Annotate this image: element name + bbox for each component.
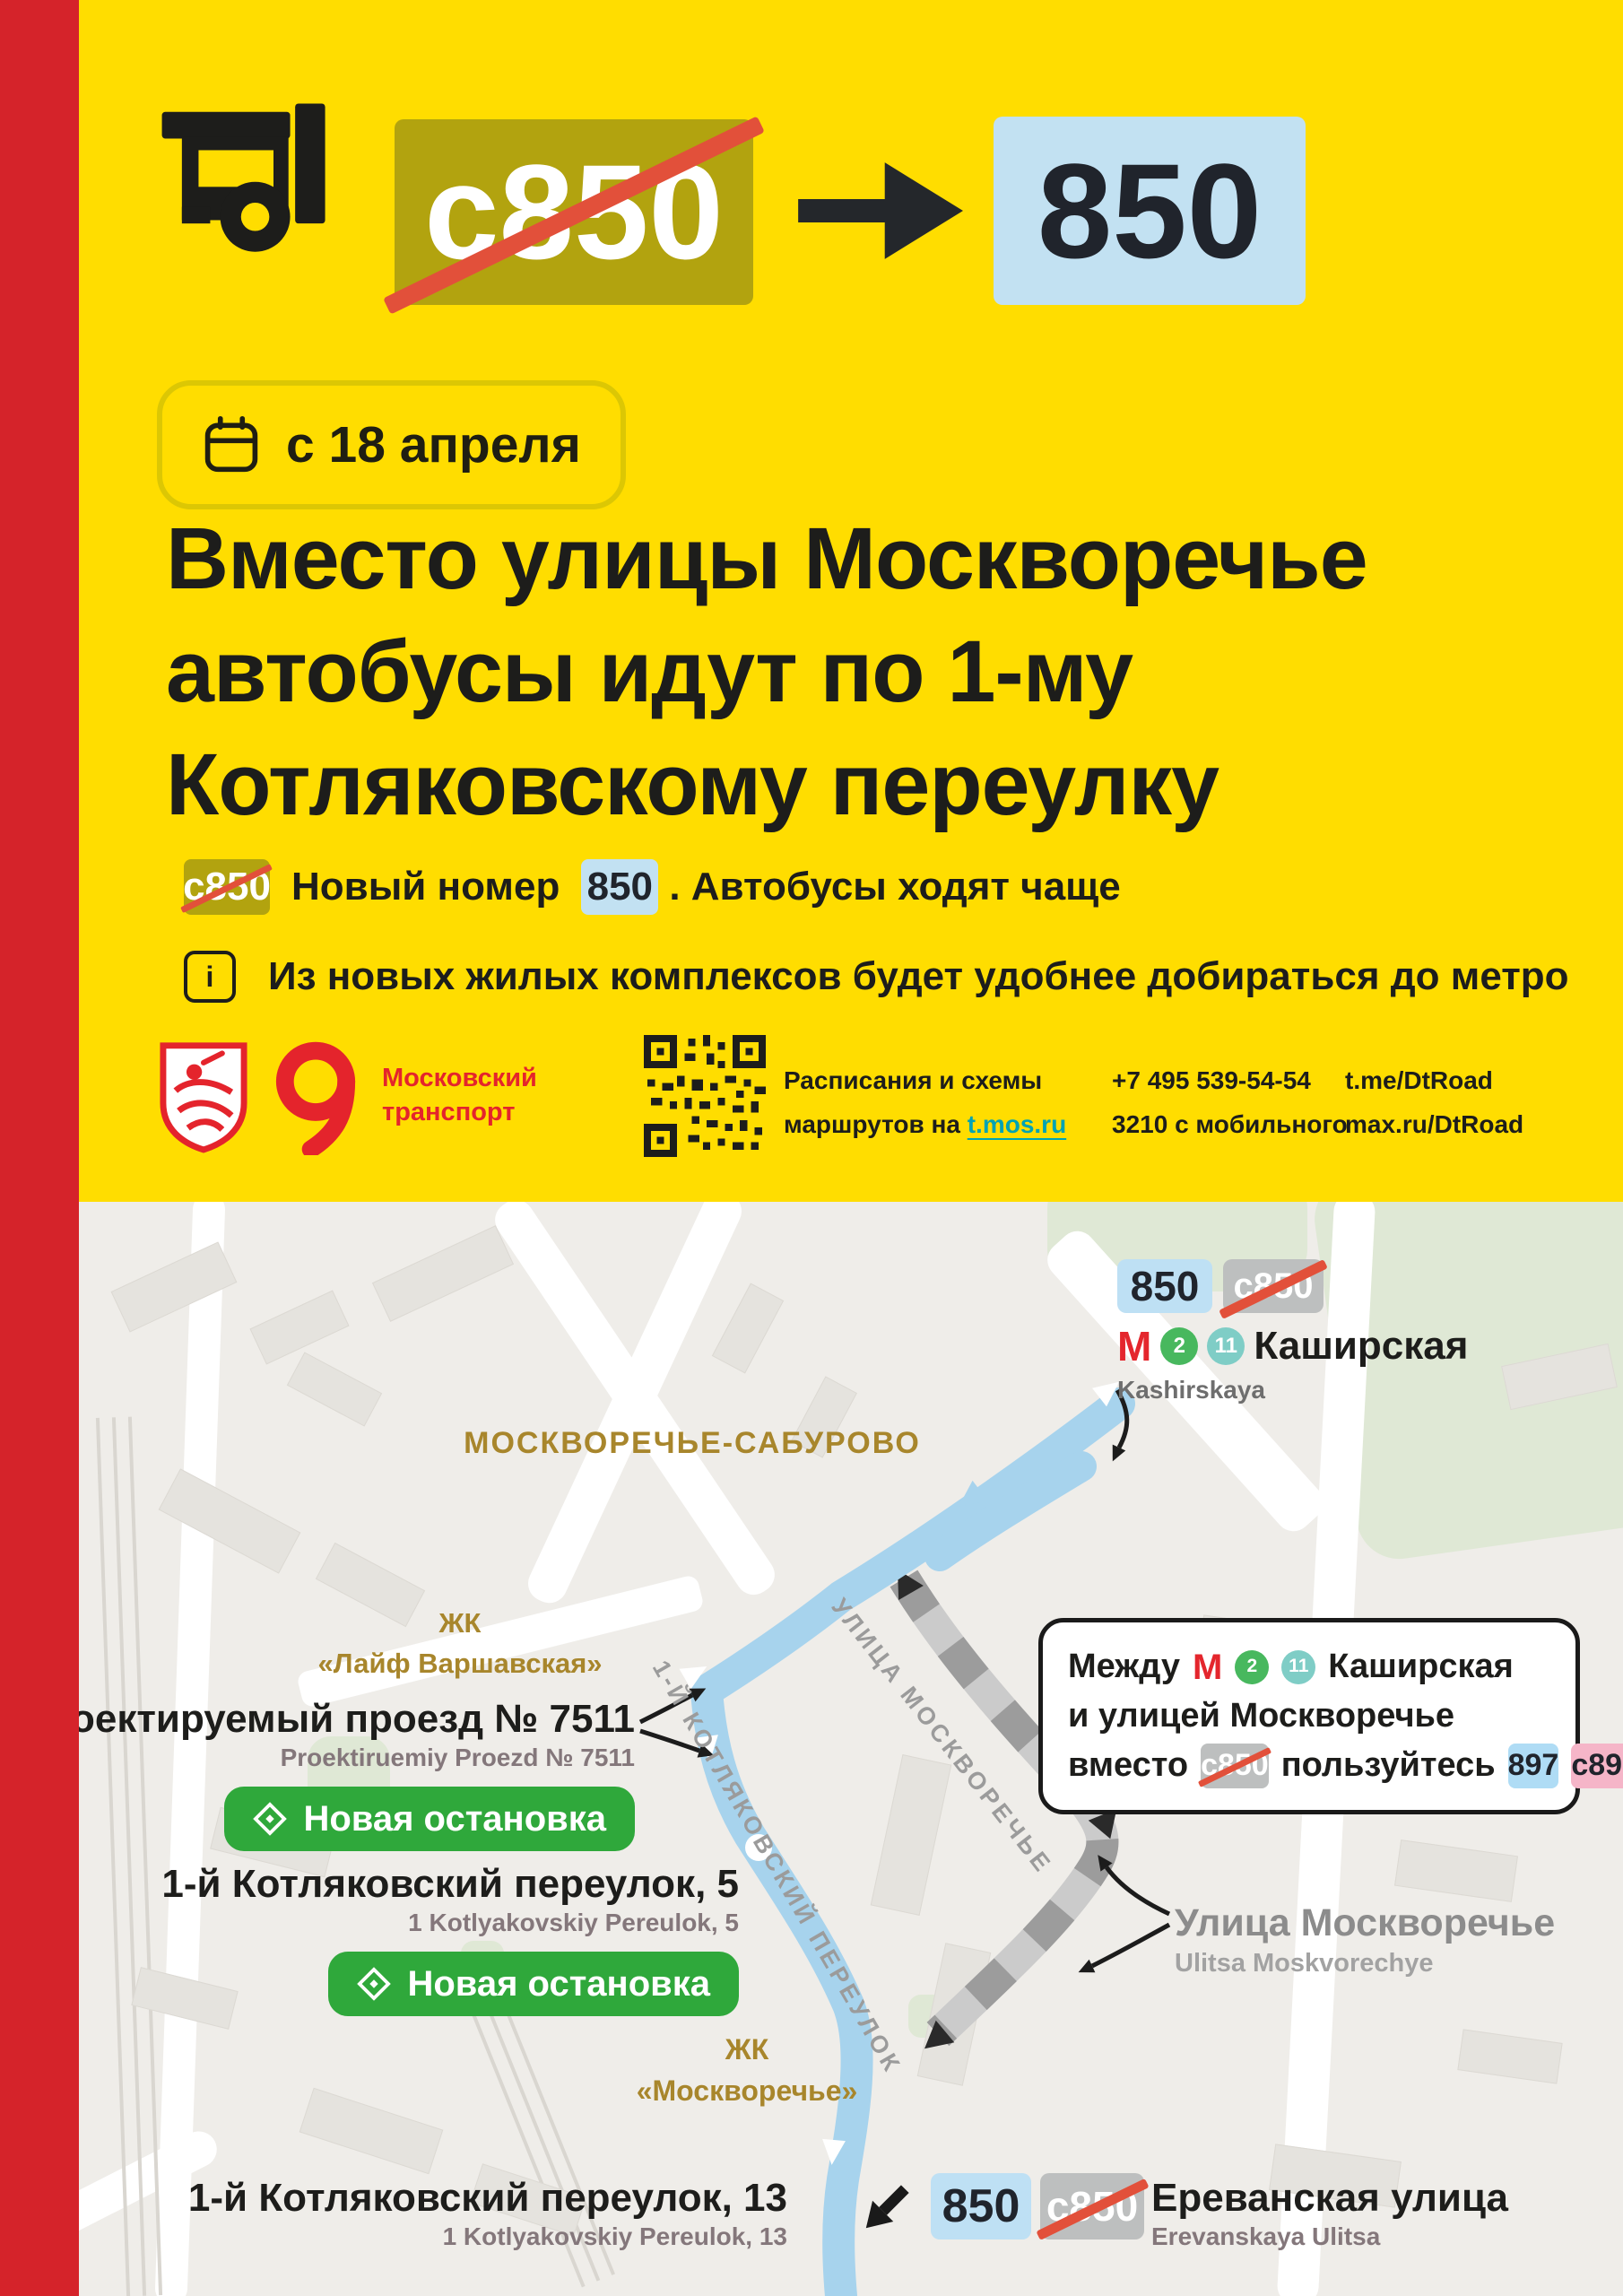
phone-mobile: 3210 с мобильного — [1112, 1102, 1348, 1146]
station-name-latin: Kashirskaya — [1117, 1376, 1468, 1405]
note-metro-access: i Из новых жилых комплексов будет удобне… — [184, 951, 1569, 1003]
diamond-icon — [253, 1802, 287, 1836]
note-text-before: Новый номер — [291, 865, 560, 909]
effective-date-badge: с 18 апреля — [157, 380, 626, 509]
old-route-mini-badge: c850 — [184, 859, 270, 915]
stop-name-latin: Proektiruemiy Proezd № 7511 — [281, 1744, 635, 1772]
metro-icon: М — [1193, 1649, 1222, 1685]
route-897-badge: 897 — [1508, 1744, 1559, 1788]
new-route-mini-badge: 850 — [581, 859, 658, 915]
zhk-moskvorechye-label: ЖК «Москворечье» — [568, 2029, 926, 2112]
diamond-icon — [357, 1967, 391, 2001]
metro-line-11-icon: 11 — [1207, 1327, 1245, 1365]
transport-poster: c850 850 с 18 апреля Вместо улицы Мо — [0, 0, 1623, 2296]
metro-line-11-icon: 11 — [1281, 1650, 1315, 1684]
metro-line-2-icon: 2 — [1235, 1650, 1269, 1684]
stop-proezd-7511: Проектируемый проезд № 7511 Proektiruemi… — [79, 1697, 635, 1851]
stop-name: Проектируемый проезд № 7511 — [79, 1697, 635, 1742]
alternative-routes-infobox: Между М 2 11 Каширская и улицей Москворе… — [1038, 1618, 1580, 1814]
qr-code-icon — [644, 1035, 766, 1157]
stop-name: 1-й Котляковский переулок, 5 — [161, 1862, 739, 1907]
new-stop-badge: Новая остановка — [224, 1787, 635, 1851]
phone-numbers: +7 495 539-54-54 3210 с мобильного — [1112, 1058, 1348, 1146]
title-line-2: автобусы идут по 1-му — [166, 615, 1367, 728]
effective-date-text: с 18 апреля — [286, 415, 581, 474]
bus-icon — [157, 88, 332, 258]
street-moskvorechye-label: Улица Москворечье Ulitsa Moskvorechye — [1175, 1901, 1555, 1979]
title-line-1: Вместо улицы Москворечье — [166, 502, 1367, 615]
moscow-transport-logo — [267, 1037, 364, 1155]
new-route-badge: 850 — [994, 117, 1306, 305]
qr-caption: Расписания и схемы маршрутов на t.mos.ru — [784, 1058, 1066, 1146]
note-new-number: c850 Новый номер 850 . Автобусы ходят ча… — [184, 859, 1121, 915]
new-route-badge-terminus: 850 — [931, 2173, 1031, 2239]
new-route-badge-map: 850 — [1117, 1259, 1212, 1313]
tmosru-link[interactable]: t.mos.ru — [968, 1110, 1066, 1138]
metro-line-2-icon: 2 — [1160, 1327, 1198, 1365]
route-map: 1-Й КОТЛЯКОВСКИЙ ПЕРЕУЛОК УЛИЦА МОСКВОРЕ… — [79, 1202, 1623, 2296]
infobox-station: Каширская — [1328, 1642, 1514, 1692]
old-route-badge-map: c850 — [1223, 1259, 1324, 1313]
arrow-down-left-icon — [861, 2181, 913, 2233]
contacts-row: Московский транспорт — [79, 1031, 1623, 1175]
station-name: Каширская — [1254, 1324, 1468, 1369]
new-stop-badge: Новая остановка — [328, 1952, 739, 2016]
old-route-badge-infobox: c850 — [1201, 1744, 1269, 1788]
moscow-coat-of-arms — [157, 1039, 250, 1155]
arrow-right-icon — [792, 152, 971, 269]
erevanskaya-street-label: Ереванская улица Erevanskaya Ulitsa — [1151, 2176, 1508, 2251]
district-label: МОСКВОРЕЧЬЕ-САБУРОВО — [423, 1426, 961, 1461]
info-icon: i — [184, 951, 236, 1003]
brand-name: Московский транспорт — [382, 1062, 537, 1129]
left-accent-stripe — [0, 0, 79, 2296]
max-link[interactable]: max.ru/DtRoad — [1345, 1102, 1523, 1146]
title-line-3: Котляковскому переулку — [166, 728, 1367, 841]
infobox-line-2: и улицей Москворечье — [1068, 1692, 1550, 1741]
old-route-badge: c850 — [395, 119, 753, 305]
stop-name-latin: 1 Kotlyakovskiy Pereulok, 5 — [408, 1909, 739, 1937]
kashirskaya-station-group: 850 c850 М 2 11 Каширская Kashirskaya — [1117, 1259, 1468, 1405]
metro-icon: М — [1117, 1326, 1151, 1367]
calendar-icon — [202, 415, 261, 474]
announcement-section: c850 850 с 18 апреля Вместо улицы Мо — [79, 0, 1623, 1202]
phone-main: +7 495 539-54-54 — [1112, 1058, 1348, 1102]
route-c891-badge: c891 — [1571, 1744, 1623, 1788]
note-metro-text: Из новых жилых комплексов будет удобнее … — [268, 954, 1569, 999]
page-title: Вместо улицы Москворечье автобусы идут п… — [166, 502, 1367, 841]
telegram-link[interactable]: t.me/DtRoad — [1345, 1058, 1523, 1102]
social-links: t.me/DtRoad max.ru/DtRoad — [1345, 1058, 1523, 1146]
stop-pereulok-5: 1-й Котляковский переулок, 5 1 Kotlyakov… — [161, 1862, 739, 2016]
terminus-stop: 1-й Котляковский переулок, 13 1 Kotlyako… — [188, 2176, 787, 2251]
zhk-life-label: ЖК «Лайф Варшавская» — [281, 1604, 639, 1684]
old-route-badge-terminus: c850 — [1040, 2173, 1144, 2239]
new-route-number: 850 — [1037, 134, 1262, 289]
note-text-after: . Автобусы ходят чаще — [669, 865, 1120, 909]
